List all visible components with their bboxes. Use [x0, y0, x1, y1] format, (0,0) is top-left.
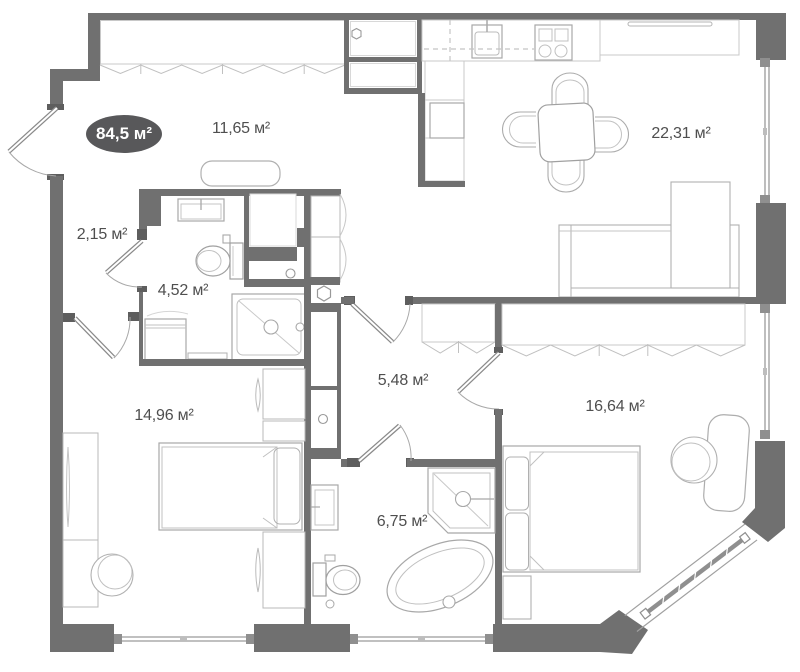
svg-text:14,96 м²: 14,96 м²: [134, 407, 194, 424]
svg-text:2,15 м²: 2,15 м²: [77, 226, 128, 243]
svg-text:11,65 м²: 11,65 м²: [212, 120, 271, 137]
svg-text:16,64 м²: 16,64 м²: [585, 398, 645, 415]
svg-text:6,75 м²: 6,75 м²: [377, 513, 428, 530]
svg-text:22,31 м²: 22,31 м²: [651, 125, 711, 142]
svg-text:84,5 м²: 84,5 м²: [96, 124, 152, 143]
svg-text:4,52 м²: 4,52 м²: [158, 282, 209, 299]
svg-text:5,48 м²: 5,48 м²: [378, 372, 429, 389]
